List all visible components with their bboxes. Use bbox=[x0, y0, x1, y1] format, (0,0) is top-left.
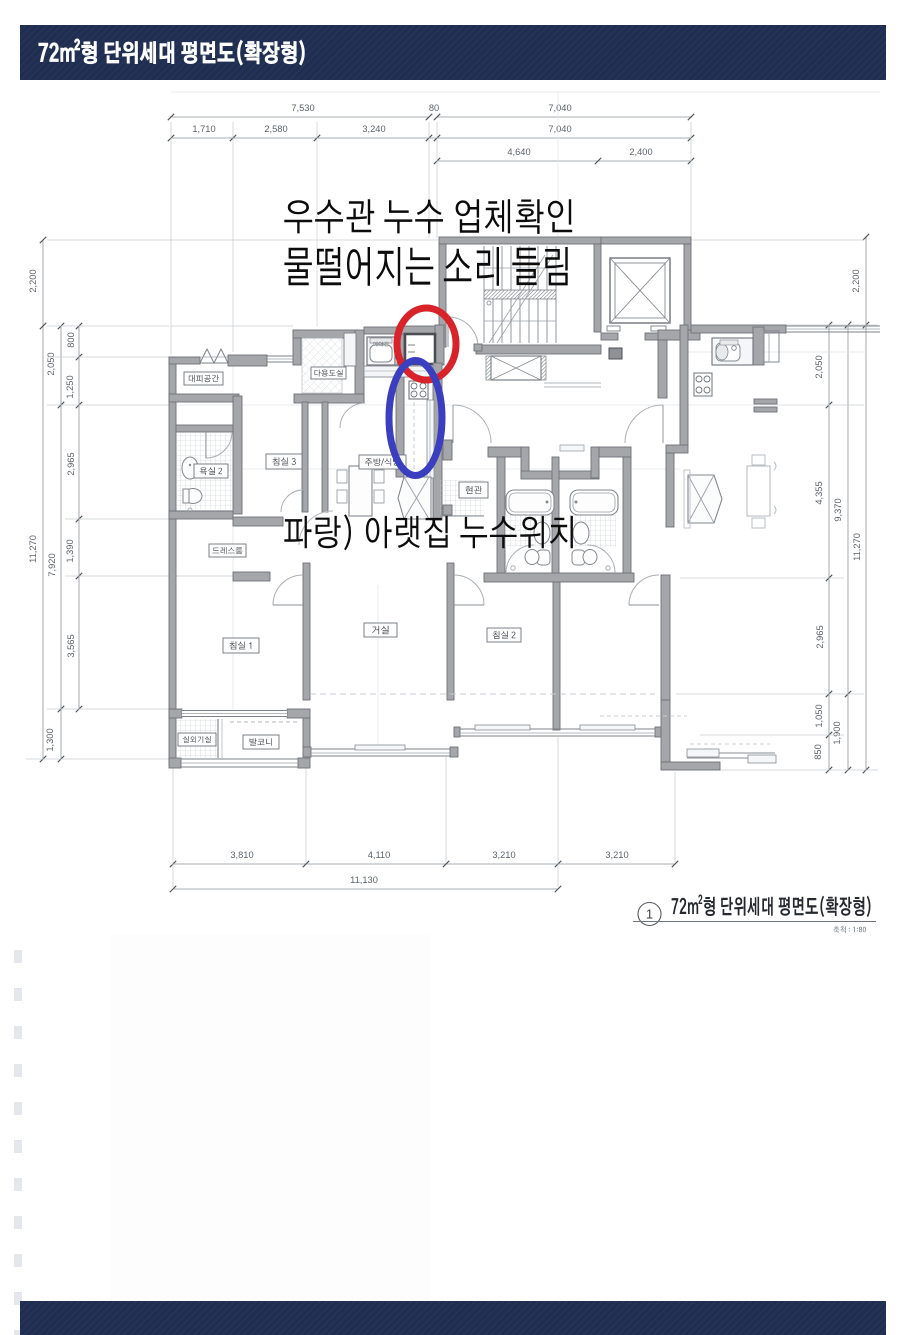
svg-text:1,250: 1,250 bbox=[65, 375, 75, 398]
svg-text:11,130: 11,130 bbox=[350, 875, 378, 885]
svg-text:7,920: 7,920 bbox=[47, 553, 57, 576]
svg-text:11,270: 11,270 bbox=[28, 535, 38, 563]
svg-text:2,200: 2,200 bbox=[851, 269, 861, 292]
svg-text:2,050: 2,050 bbox=[46, 352, 56, 375]
svg-text:1,710: 1,710 bbox=[192, 124, 215, 134]
svg-text:3,565: 3,565 bbox=[66, 634, 76, 657]
svg-text:1,300: 1,300 bbox=[45, 728, 55, 751]
svg-text:3,810: 3,810 bbox=[230, 850, 253, 860]
svg-text:3,240: 3,240 bbox=[362, 124, 385, 134]
svg-text:1,900: 1,900 bbox=[832, 721, 842, 744]
svg-text:4,110: 4,110 bbox=[368, 850, 391, 860]
svg-text:2,200: 2,200 bbox=[28, 269, 38, 292]
svg-text:4,640: 4,640 bbox=[507, 147, 530, 157]
svg-text:9,370: 9,370 bbox=[833, 498, 843, 521]
svg-text:7,040: 7,040 bbox=[548, 103, 571, 113]
svg-text:80: 80 bbox=[429, 103, 439, 113]
svg-text:2,580: 2,580 bbox=[264, 124, 287, 134]
svg-text:7,040: 7,040 bbox=[548, 124, 571, 134]
svg-text:1: 1 bbox=[646, 907, 653, 922]
svg-text:7,530: 7,530 bbox=[291, 103, 314, 113]
svg-text:1,390: 1,390 bbox=[65, 539, 75, 562]
svg-text:4,355: 4,355 bbox=[814, 481, 824, 504]
svg-text:2,965: 2,965 bbox=[66, 452, 76, 475]
svg-text:800: 800 bbox=[66, 332, 76, 348]
svg-text:2,400: 2,400 bbox=[629, 147, 652, 157]
svg-text:2,965: 2,965 bbox=[815, 625, 825, 648]
svg-text:1,050: 1,050 bbox=[814, 704, 824, 727]
svg-text:3,210: 3,210 bbox=[492, 850, 515, 860]
svg-text:3,210: 3,210 bbox=[605, 850, 628, 860]
svg-text:850: 850 bbox=[813, 744, 823, 760]
svg-text:11,270: 11,270 bbox=[852, 533, 862, 561]
svg-text:2,050: 2,050 bbox=[814, 355, 824, 378]
